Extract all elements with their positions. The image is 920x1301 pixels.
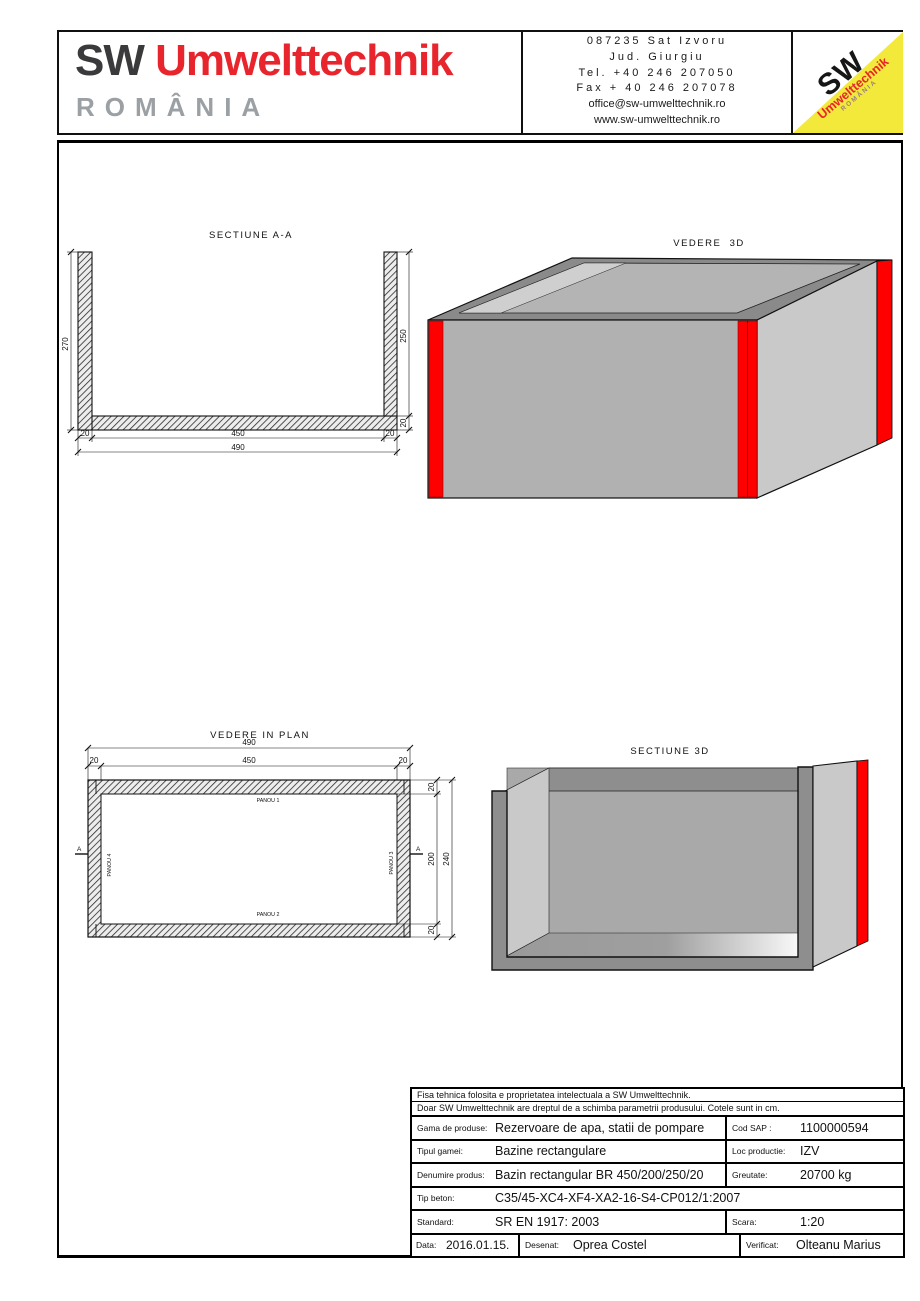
section-3d-tank (492, 760, 868, 970)
drawing-section-3d: SECTIUNE 3D (485, 740, 885, 980)
verificat-label: Verificat: (741, 1240, 796, 1250)
greutate-label: Greutate: (727, 1170, 800, 1180)
dim-left-height: 270 (61, 337, 70, 351)
table-row-tip-beton: Tip beton: C35/45-XC4-XF4-XA2-16-S4-CP01… (412, 1186, 903, 1210)
dim-right-inner: 200 (427, 852, 436, 866)
plan-title: VEDERE IN PLAN (210, 730, 310, 741)
dim-bottom-left-wall: 20 (81, 429, 90, 438)
company-logo: SW Umwelttechnik (75, 36, 453, 86)
section-aa-dimension-labels: 270 250 20 20 450 20 490 (61, 329, 408, 452)
table-note: Fisa tehnica folosita e proprietatea int… (412, 1089, 903, 1115)
gama-value: Rezervoare de apa, statii de pompare (495, 1121, 704, 1135)
contact-county-line: Jud. Giurgiu (523, 50, 791, 66)
panel-1-label: PANOU 1 (257, 798, 280, 804)
dim-top-right-wall: 20 (399, 756, 408, 765)
tip-beton-label: Tip beton: (412, 1193, 495, 1203)
drawing-section-aa: SECTIUNE A-A 270 250 20 (60, 225, 420, 465)
note-line-2: Doar SW Umwelttechnik are dreptul de a s… (412, 1102, 903, 1115)
table-row-gama: Gama de produse: Rezervoare de apa, stat… (412, 1115, 903, 1139)
drawing-plan-view: VEDERE IN PLAN (65, 728, 465, 953)
tip-beton-value: C35/45-XC4-XF4-XA2-16-S4-CP012/1:2007 (495, 1191, 740, 1205)
table-row-tipul: Tipul gamei: Bazine rectangulare Loc pro… (412, 1139, 903, 1163)
logo-country-text: ROMÂNIA (76, 92, 270, 123)
plan-walls (88, 780, 410, 937)
dim-bottom-inner: 450 (231, 429, 245, 438)
contact-block: 087235 Sat Izvoru Jud. Giurgiu Tel. +40 … (523, 34, 791, 129)
view-3d-title: VEDERE 3D (673, 238, 745, 249)
dim-slab-thickness: 20 (399, 418, 408, 427)
dim-right-height: 250 (399, 329, 408, 343)
verificat-value: Olteanu Marius (796, 1238, 881, 1252)
dim-bottom-total: 490 (231, 443, 245, 452)
contact-fax-line: Fax + 40 246 207078 (523, 81, 791, 97)
company-badge: SW Umwelttechnik ROMÂNIA (793, 32, 903, 133)
scara-value: 1:20 (800, 1215, 824, 1229)
scara-label: Scara: (727, 1217, 800, 1227)
contact-email-line: office@sw-umwelttechnik.ro (523, 97, 791, 113)
view-3d-tank (428, 258, 892, 498)
logo-name-text: Umwelttechnik (155, 36, 453, 85)
table-row-signatures: Data: 2016.01.15. Desenat: Oprea Costel … (412, 1233, 903, 1257)
dim-right-total: 240 (442, 852, 451, 866)
desenat-value: Oprea Costel (573, 1238, 647, 1252)
greutate-value: 20700 kg (800, 1168, 851, 1182)
logo-sw-text: SW (75, 36, 144, 85)
red-panel-stripe-side (877, 260, 892, 445)
denumire-label: Denumire produs: (412, 1170, 495, 1180)
contact-address-line: 087235 Sat Izvoru (523, 34, 791, 50)
cod-sap-label: Cod SAP : (727, 1123, 800, 1133)
red-panel-stripe-front-left (429, 321, 443, 497)
note-line-1: Fisa tehnica folosita e proprietatea int… (412, 1089, 903, 1102)
red-panel-stripe-section3d (857, 760, 868, 946)
desenat-label: Desenat: (520, 1240, 573, 1250)
data-value: 2016.01.15. (446, 1238, 509, 1252)
contact-phone-line: Tel. +40 246 207050 (523, 66, 791, 82)
dim-top-left-wall: 20 (90, 756, 99, 765)
section-marker-a-right: A (416, 846, 421, 853)
dim-top-total: 490 (242, 738, 256, 747)
loc-label: Loc productie: (727, 1146, 800, 1156)
tipul-label: Tipul gamei: (412, 1146, 495, 1156)
loc-value: IZV (800, 1144, 819, 1158)
cod-sap-value: 1100000594 (800, 1121, 869, 1135)
dim-right-top-wall: 20 (427, 782, 436, 791)
denumire-value: Bazin rectangular BR 450/200/250/20 (495, 1168, 703, 1182)
panel-4-label: PANOU 4 (107, 854, 113, 877)
drawing-view-3d: VEDERE 3D (420, 235, 905, 505)
standard-label: Standard: (412, 1217, 495, 1227)
data-label: Data: (412, 1240, 446, 1250)
gama-label: Gama de produse: (412, 1123, 495, 1133)
table-row-standard: Standard: SR EN 1917: 2003 Scara: 1:20 (412, 1209, 903, 1233)
dim-top-inner: 450 (242, 756, 256, 765)
contact-website-line: www.sw-umwelttechnik.ro (523, 113, 791, 129)
dim-bottom-right-wall: 20 (386, 429, 395, 438)
panel-3-label: PANOU 3 (389, 852, 395, 875)
standard-value: SR EN 1917: 2003 (495, 1215, 599, 1229)
title-block-table: Fisa tehnica folosita e proprietatea int… (410, 1087, 905, 1258)
section-aa-walls (78, 252, 397, 430)
section-3d-title: SECTIUNE 3D (630, 746, 709, 757)
section-aa-title: SECTIUNE A-A (209, 230, 293, 241)
technical-datasheet-page: SW Umwelttechnik ROMÂNIA 087235 Sat Izvo… (0, 0, 920, 1301)
table-row-denumire: Denumire produs: Bazin rectangular BR 45… (412, 1162, 903, 1186)
panel-2-label: PANOU 2 (257, 912, 280, 918)
tipul-value: Bazine rectangulare (495, 1144, 606, 1158)
dim-right-bottom-wall: 20 (427, 925, 436, 934)
section-marker-a-left: A (77, 846, 82, 853)
